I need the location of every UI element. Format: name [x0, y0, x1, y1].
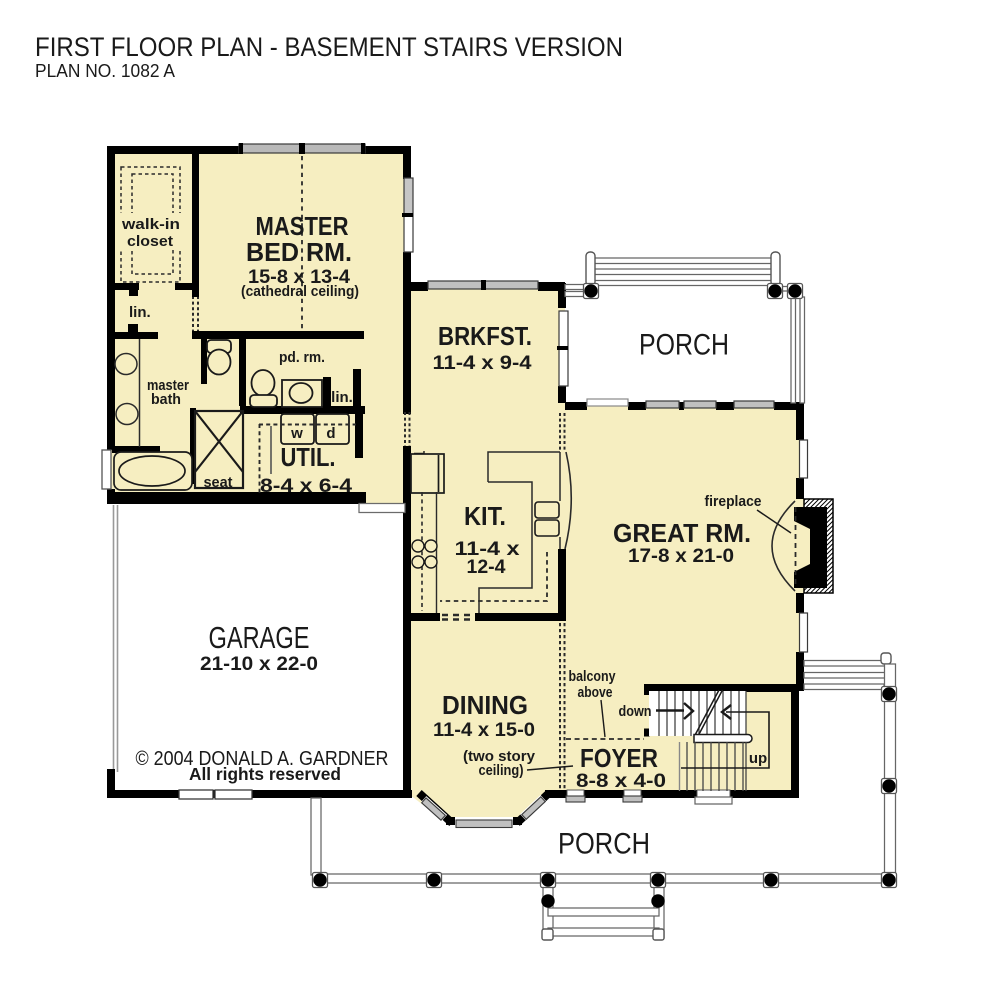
- svg-text:FIRST FLOOR PLAN - BASEMENT ST: FIRST FLOOR PLAN - BASEMENT STAIRS VERSI…: [35, 32, 623, 62]
- svg-text:11-4 x 15-0: 11-4 x 15-0: [433, 720, 535, 741]
- svg-text:ceiling): ceiling): [479, 762, 524, 779]
- svg-text:8-8 x 4-0: 8-8 x 4-0: [576, 771, 666, 792]
- svg-text:w: w: [290, 425, 303, 442]
- svg-text:KIT.: KIT.: [464, 501, 506, 531]
- svg-text:fireplace: fireplace: [705, 493, 762, 510]
- svg-text:All rights reserved: All rights reserved: [189, 764, 341, 784]
- svg-text:balcony: balcony: [569, 668, 617, 685]
- svg-text:17-8 x 21-0: 17-8 x 21-0: [628, 546, 734, 567]
- svg-text:11-4 x 9-4: 11-4 x 9-4: [433, 353, 532, 374]
- svg-text:(cathedral ceiling): (cathedral ceiling): [241, 283, 359, 300]
- svg-text:GARAGE: GARAGE: [209, 620, 310, 655]
- svg-text:FOYER: FOYER: [580, 743, 658, 773]
- svg-text:seat: seat: [204, 474, 233, 491]
- svg-text:walk-in: walk-in: [121, 216, 180, 233]
- svg-text:21-10 x 22-0: 21-10 x 22-0: [200, 654, 318, 675]
- svg-text:up: up: [749, 750, 767, 767]
- svg-text:BRKFST.: BRKFST.: [438, 321, 532, 351]
- svg-text:PLAN NO. 1082 A: PLAN NO. 1082 A: [35, 60, 176, 81]
- svg-text:d: d: [326, 425, 335, 442]
- svg-text:PORCH: PORCH: [558, 828, 650, 861]
- svg-text:above: above: [578, 684, 613, 701]
- svg-text:GREAT RM.: GREAT RM.: [613, 518, 751, 548]
- svg-text:lin.: lin.: [129, 304, 151, 321]
- svg-text:closet: closet: [127, 233, 173, 250]
- svg-text:UTIL.: UTIL.: [281, 442, 336, 472]
- svg-text:BED RM.: BED RM.: [246, 237, 352, 267]
- svg-text:lin.: lin.: [331, 389, 353, 406]
- svg-text:DINING: DINING: [442, 690, 528, 720]
- svg-text:PORCH: PORCH: [639, 329, 729, 362]
- svg-text:8-4 x 6-4: 8-4 x 6-4: [260, 476, 353, 497]
- svg-text:pd. rm.: pd. rm.: [279, 349, 325, 366]
- svg-text:12-4: 12-4: [467, 557, 506, 578]
- svg-text:bath: bath: [151, 391, 181, 408]
- svg-text:down: down: [619, 703, 652, 720]
